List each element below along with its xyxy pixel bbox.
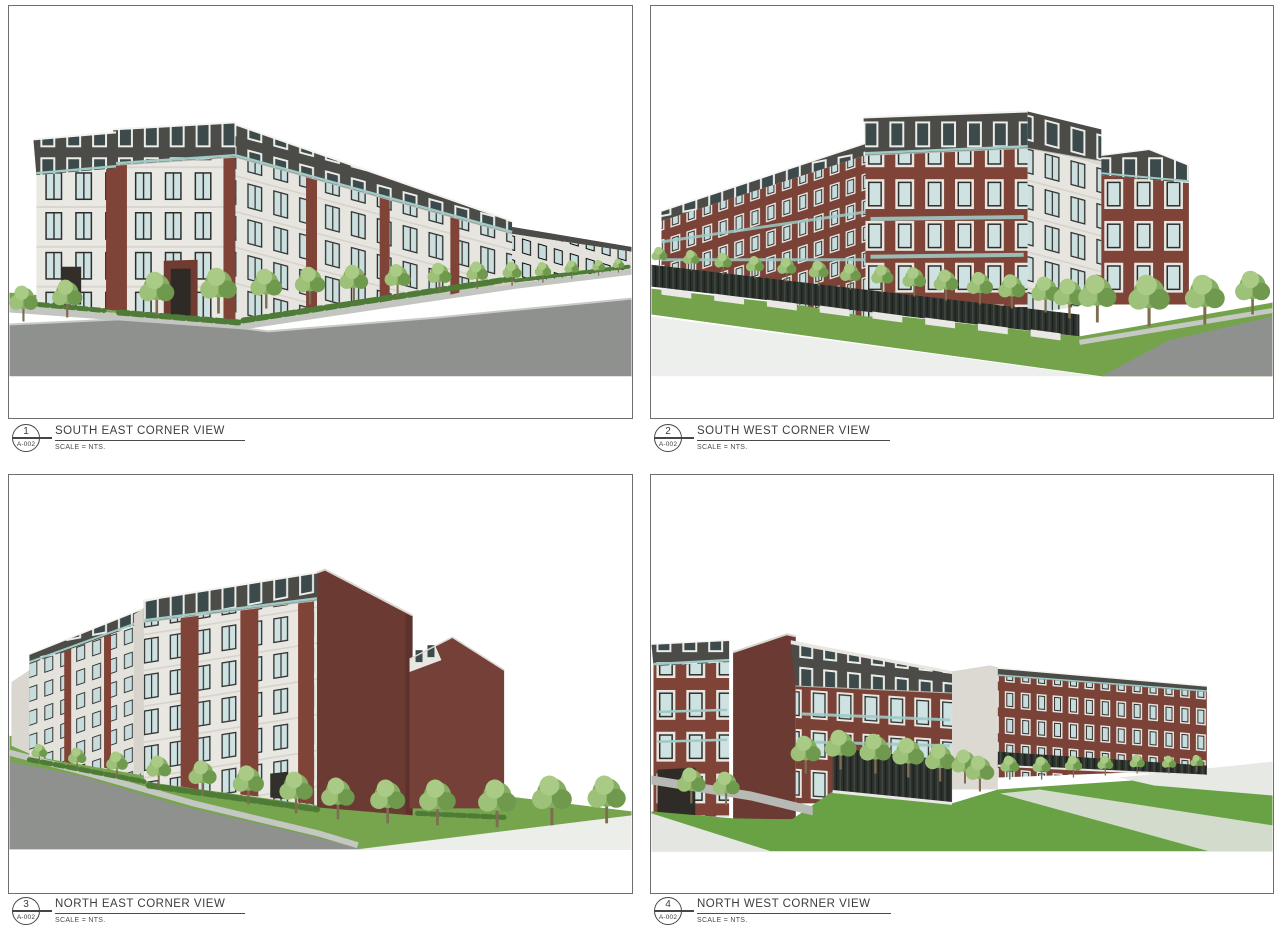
scale-note: SCALE = NTS.	[55, 444, 245, 451]
scale-note: SCALE = NTS.	[697, 444, 890, 451]
view-panel-north-west	[650, 474, 1274, 894]
scale-note: SCALE = NTS.	[55, 917, 245, 924]
caption-south-west: 2 A-002 SOUTH WEST CORNER VIEW SCALE = N…	[654, 424, 890, 452]
sheet-reference: A-002	[12, 914, 40, 921]
view-panel-south-east	[8, 5, 633, 419]
detail-bubble: 2 A-002	[654, 424, 682, 452]
view-title: NORTH WEST CORNER VIEW	[697, 898, 891, 914]
caption-text: SOUTH WEST CORNER VIEW SCALE = NTS.	[697, 424, 890, 451]
caption-south-east: 1 A-002 SOUTH EAST CORNER VIEW SCALE = N…	[12, 424, 245, 452]
rendering-south-east	[9, 6, 632, 418]
view-number: 2	[654, 426, 682, 437]
detail-bubble: 4 A-002	[654, 897, 682, 925]
view-number: 4	[654, 899, 682, 910]
detail-bubble: 1 A-002	[12, 424, 40, 452]
building-brick-gable	[317, 570, 413, 816]
sheet-reference: A-002	[654, 914, 682, 921]
view-panel-south-west	[650, 5, 1274, 419]
view-number: 1	[12, 426, 40, 437]
caption-text: NORTH EAST CORNER VIEW SCALE = NTS.	[55, 897, 245, 924]
drawing-sheet: 1 A-002 SOUTH EAST CORNER VIEW SCALE = N…	[0, 0, 1280, 942]
detail-bubble: 3 A-002	[12, 897, 40, 925]
sheet-reference: A-002	[654, 441, 682, 448]
view-title: SOUTH EAST CORNER VIEW	[55, 425, 245, 441]
sheet-reference: A-002	[12, 441, 40, 448]
view-title: SOUTH WEST CORNER VIEW	[697, 425, 890, 441]
view-panel-north-east	[8, 474, 633, 894]
caption-text: SOUTH EAST CORNER VIEW SCALE = NTS.	[55, 424, 245, 451]
scale-note: SCALE = NTS.	[697, 917, 891, 924]
caption-north-east: 3 A-002 NORTH EAST CORNER VIEW SCALE = N…	[12, 897, 245, 925]
building-left	[33, 132, 116, 310]
caption-north-west: 4 A-002 NORTH WEST CORNER VIEW SCALE = N…	[654, 897, 891, 925]
view-number: 3	[12, 899, 40, 910]
caption-text: NORTH WEST CORNER VIEW SCALE = NTS.	[697, 897, 891, 924]
rendering-north-west	[651, 475, 1273, 893]
view-title: NORTH EAST CORNER VIEW	[55, 898, 245, 914]
rendering-south-west	[651, 6, 1273, 418]
rendering-north-east	[9, 475, 632, 893]
